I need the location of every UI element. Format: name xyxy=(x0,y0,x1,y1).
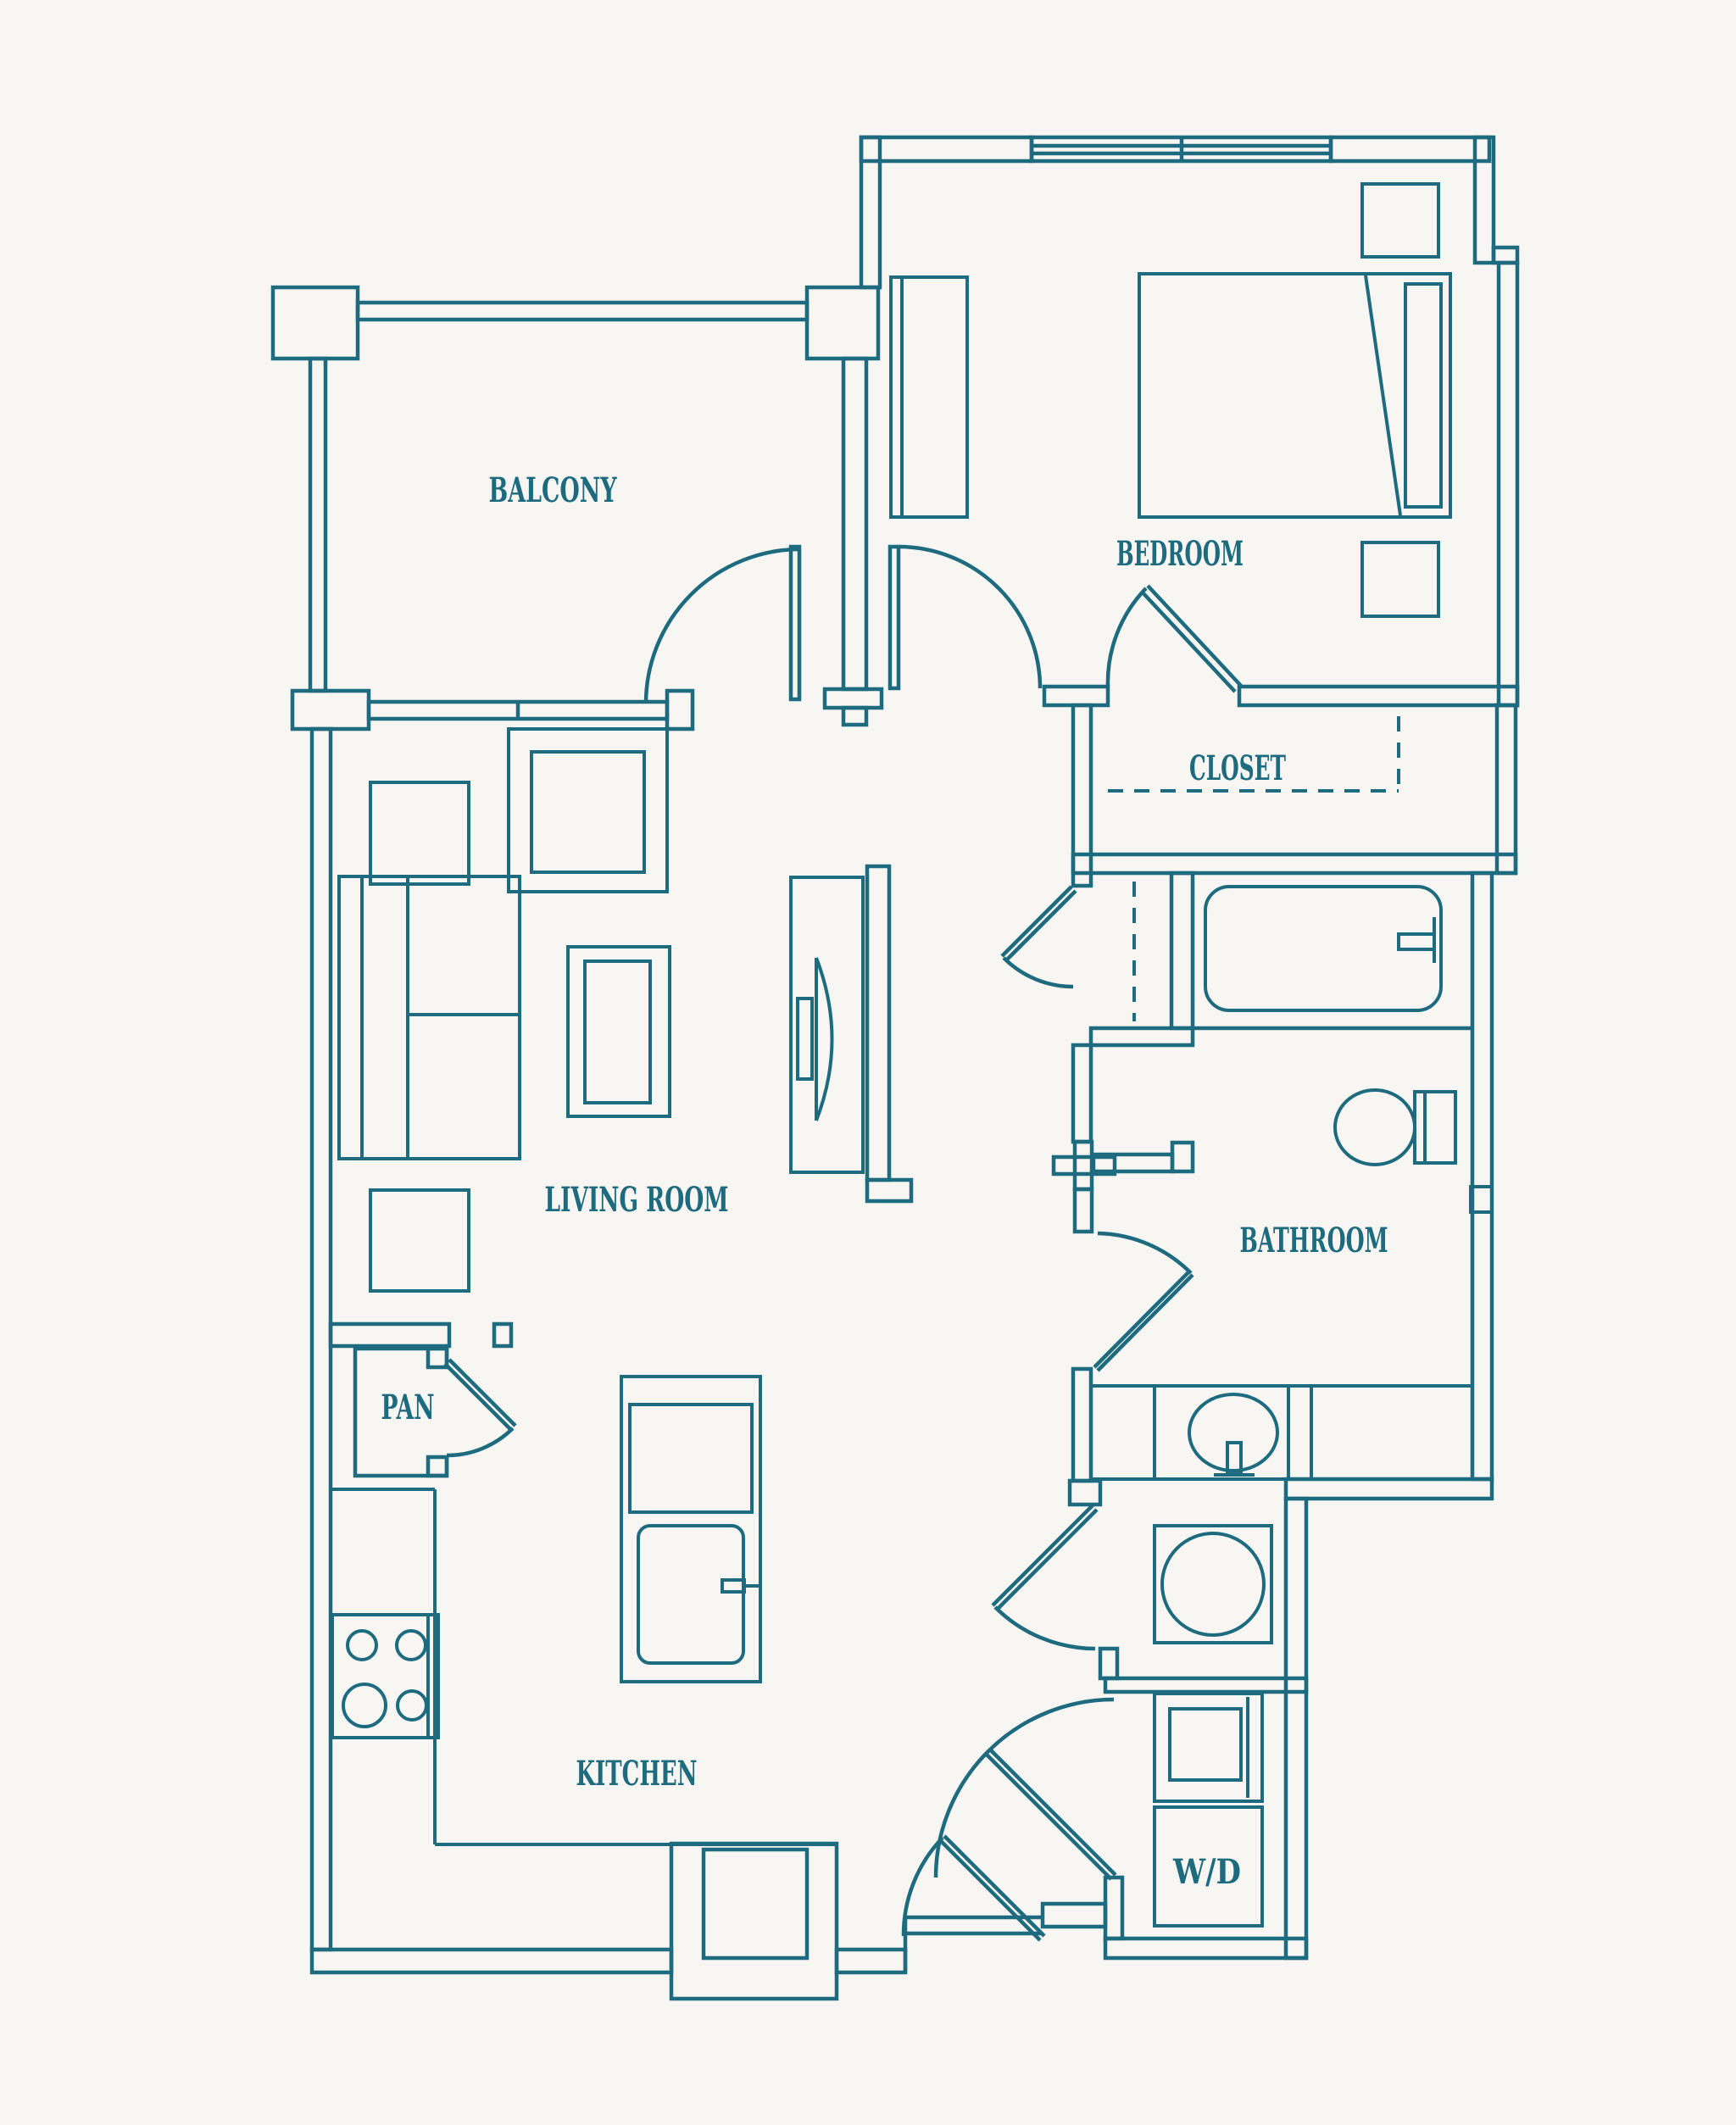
burner xyxy=(343,1684,386,1727)
room-label-balcony: BALCONY xyxy=(489,470,617,510)
hall-walls xyxy=(867,866,1193,1678)
balcony-door-leaf xyxy=(791,547,799,699)
floor-plan: BALCONY BEDROOM CLOSET LIVING ROOM BATHR… xyxy=(0,0,1736,2125)
linen-door-leaf xyxy=(1002,887,1071,956)
utility-door-leaf xyxy=(993,1505,1093,1605)
tv-mount xyxy=(798,999,812,1079)
room-label-pantry: PAN xyxy=(381,1388,435,1427)
tv-console xyxy=(791,877,863,1172)
room-label-closet: CLOSET xyxy=(1189,748,1286,788)
pantry-door-arc xyxy=(447,1428,513,1455)
utility-door-arc xyxy=(995,1607,1095,1649)
wd-door-leaf xyxy=(989,1749,1116,1875)
bathroom-door-leaf xyxy=(1094,1271,1189,1367)
room-label-bathroom: BATHROOM xyxy=(1240,1221,1388,1260)
tub-faucet xyxy=(1399,934,1434,949)
bed-fold-line xyxy=(1366,275,1400,515)
closet-walls xyxy=(1073,705,1516,886)
bedroom-door-leaf xyxy=(890,547,899,688)
sofa xyxy=(339,876,520,1159)
entry-door-leaf xyxy=(944,1836,1044,1936)
kitchen-bay-window xyxy=(671,1844,837,1999)
wd-door-arc xyxy=(936,1699,1114,1877)
island-faucet xyxy=(722,1580,744,1592)
water-heater-closet xyxy=(1155,1526,1271,1643)
bed-pillows xyxy=(1405,284,1441,507)
room-label-bedroom: BEDROOM xyxy=(1116,534,1244,574)
floor-plan-page: BALCONY BEDROOM CLOSET LIVING ROOM BATHR… xyxy=(0,0,1736,2125)
burner xyxy=(398,1691,426,1720)
vanity-faucet xyxy=(1227,1443,1241,1473)
bathroom-door-arc xyxy=(1098,1233,1191,1273)
linen-door-arc xyxy=(1004,958,1073,987)
water-heater xyxy=(1162,1533,1264,1635)
end-table xyxy=(370,1190,469,1291)
room-label-living-room: LIVING ROOM xyxy=(545,1180,729,1220)
bed xyxy=(1139,274,1450,517)
island-sink xyxy=(638,1526,743,1663)
pantry-door-leaf xyxy=(445,1364,511,1430)
toilet-tank xyxy=(1415,1092,1455,1163)
end-table xyxy=(370,782,469,884)
balcony-door-arc xyxy=(646,549,799,704)
room-label-washer-dryer: W/D xyxy=(1172,1852,1241,1892)
burner xyxy=(348,1631,376,1660)
nightstand xyxy=(1362,184,1438,257)
bedroom-walls xyxy=(825,137,1517,725)
closet-door-arc xyxy=(1108,588,1146,687)
closet-door-leaf xyxy=(1148,586,1241,686)
nightstand xyxy=(1362,542,1438,616)
kitchen-walls xyxy=(312,729,1105,1999)
vanity-sink xyxy=(1189,1394,1277,1471)
burner xyxy=(397,1631,426,1660)
bedroom-door-arc xyxy=(899,547,1040,688)
bathroom-fixtures xyxy=(1091,873,1492,1479)
room-label-kitchen: KITCHEN xyxy=(576,1754,698,1794)
tv-screen xyxy=(816,958,832,1121)
toilet-bowl xyxy=(1335,1090,1415,1165)
